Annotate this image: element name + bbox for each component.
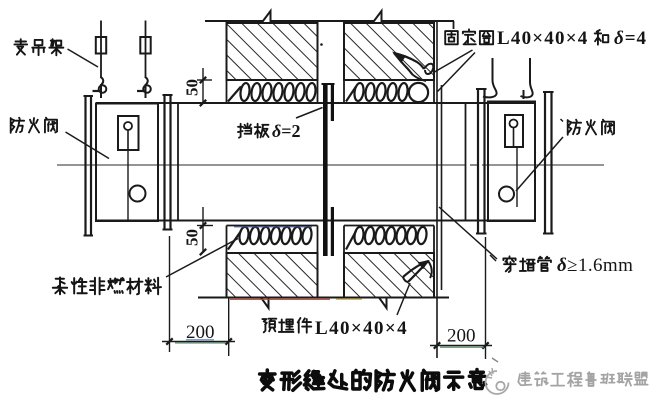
svg-text:L40×40×4: L40×40×4 [497,28,588,49]
svg-text:δ=4: δ=4 [614,28,647,49]
svg-text:50: 50 [183,229,202,246]
svg-text:δ≥1.6mm: δ≥1.6mm [557,255,633,276]
svg-text:50: 50 [183,79,202,96]
svg-text:δ=2: δ=2 [272,121,301,141]
svg-text:L40×40×4: L40×40×4 [315,318,408,339]
svg-text:200: 200 [447,326,476,347]
